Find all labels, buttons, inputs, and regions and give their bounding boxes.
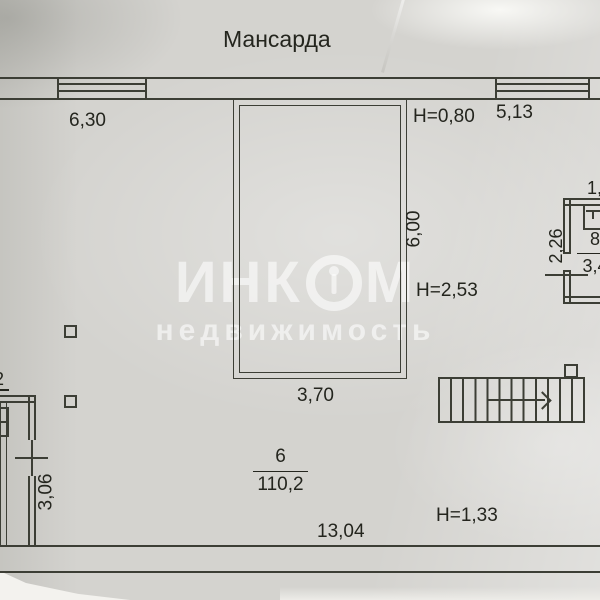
dim-height-middle: Н=2,53 [416, 281, 478, 300]
dim-room8-width-partial: 1, [587, 179, 600, 197]
floorplan-scan: ИНК М недвижимость [0, 0, 600, 600]
dim-bottom-width: 13,04 [317, 522, 365, 541]
dim-top-left-window: 6,30 [69, 111, 106, 130]
window-glazing-line [59, 83, 145, 85]
dim-room8-height: 2,26 [547, 228, 565, 263]
dim-top-right-window: 5,13 [496, 103, 533, 122]
window-top-right [495, 77, 590, 100]
column-marker-2 [64, 395, 77, 408]
bottom-wall-outer-line [0, 545, 600, 547]
room6-area: 110,2 [253, 472, 308, 496]
radiator-fixture [0, 407, 9, 437]
room8-wall-bottom [563, 296, 600, 304]
bottom-wall-inner-line [0, 571, 600, 573]
partial-label-fraction-bar [0, 389, 9, 391]
dim-height-top: Н=0,80 [413, 107, 475, 126]
window-glazing-line [59, 90, 145, 92]
sink-fixture [583, 204, 600, 230]
column-marker-1 [64, 325, 77, 338]
window-glazing-line [497, 83, 588, 85]
dim-center-width: 3,70 [297, 386, 334, 405]
plan-title: Мансарда [223, 28, 331, 51]
paper-crease-top [381, 0, 406, 73]
dim-center-height: 6,00 [405, 211, 424, 248]
center-room-outline-inner [239, 105, 401, 373]
room8-number: 8 [577, 230, 600, 254]
leftroom-wall-right-upper [28, 395, 36, 440]
dim-height-bottom: Н=1,33 [436, 506, 498, 525]
room6-label: 6 110,2 [253, 447, 308, 496]
dim-leftroom-depth: 3,06 [37, 474, 56, 511]
window-top-left [57, 77, 147, 100]
stair-landing-marker [564, 364, 578, 378]
dimension-tick-leftroom [15, 457, 48, 459]
paper-highlight-bottom-right [280, 587, 600, 600]
room8-area: 3,4 [577, 254, 600, 277]
partial-label-left-edge: 2 [0, 370, 4, 388]
sink-detail-stem [592, 210, 594, 219]
room6-number: 6 [253, 447, 308, 472]
window-glazing-line [497, 90, 588, 92]
room8-label: 8 3,4 [577, 230, 600, 277]
radiator-detail-line [0, 421, 7, 423]
